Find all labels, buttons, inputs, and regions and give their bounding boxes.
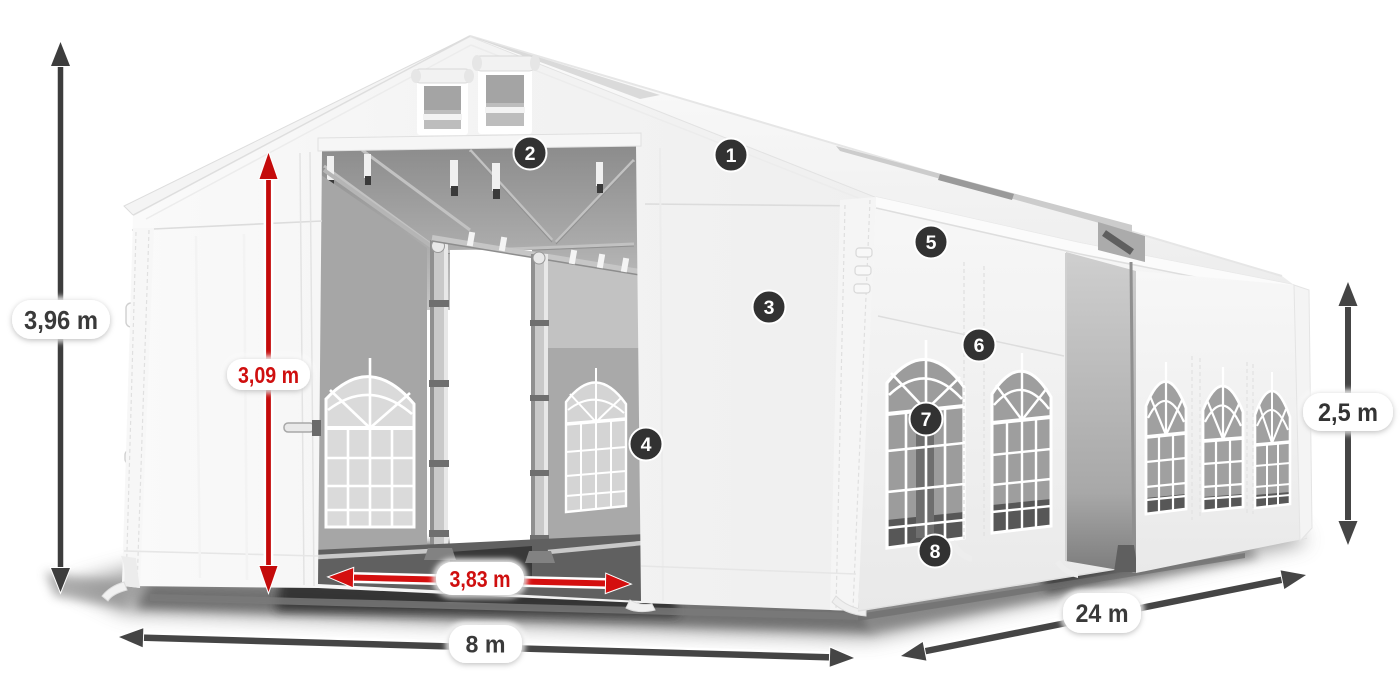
- svg-text:1: 1: [726, 145, 737, 167]
- svg-text:3: 3: [764, 297, 775, 319]
- svg-text:4: 4: [641, 434, 652, 456]
- svg-text:24 m: 24 m: [1076, 600, 1129, 628]
- svg-text:3,09 m: 3,09 m: [238, 362, 299, 388]
- svg-text:3,96 m: 3,96 m: [24, 305, 98, 335]
- svg-text:2: 2: [525, 143, 536, 165]
- svg-text:8 m: 8 m: [466, 632, 506, 659]
- svg-text:5: 5: [926, 232, 937, 254]
- svg-text:2,5 m: 2,5 m: [1318, 399, 1378, 427]
- svg-text:7: 7: [921, 409, 932, 431]
- svg-text:3,83 m: 3,83 m: [450, 566, 511, 592]
- svg-text:6: 6: [974, 335, 985, 357]
- svg-text:8: 8: [930, 541, 941, 563]
